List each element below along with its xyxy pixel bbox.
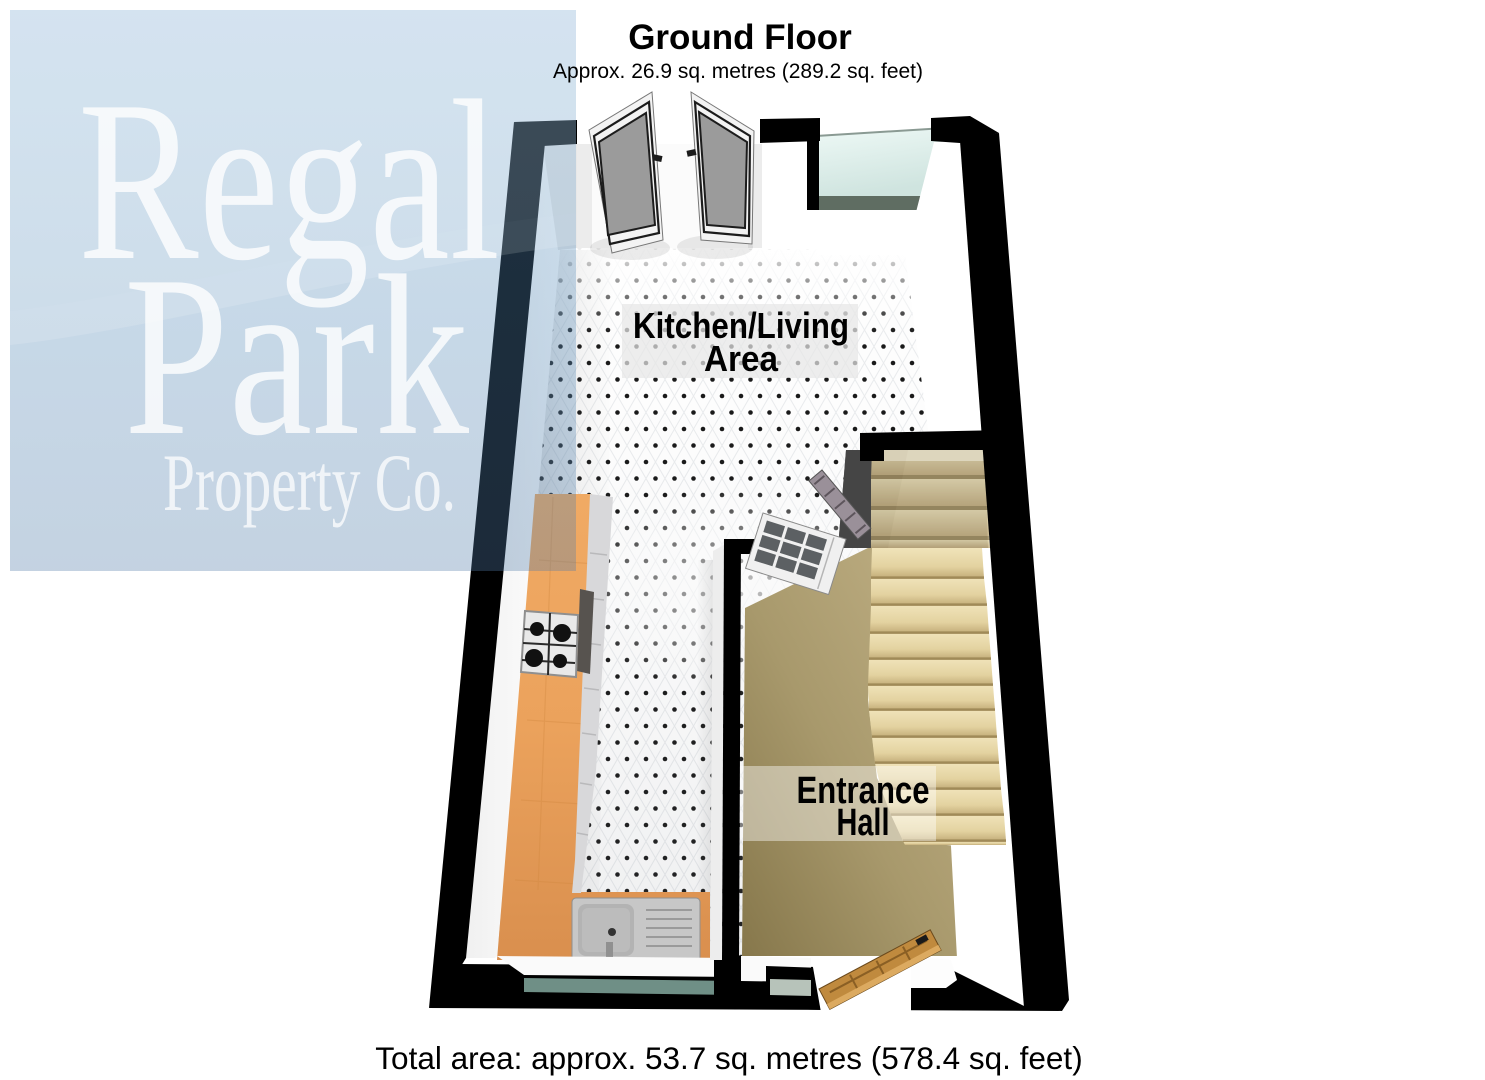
svg-text:Hall: Hall bbox=[837, 802, 890, 844]
svg-text:Property Co.: Property Co. bbox=[163, 437, 456, 528]
svg-text:Ground Floor: Ground Floor bbox=[628, 18, 852, 57]
svg-text:Approx. 26.9 sq. metres (289.2: Approx. 26.9 sq. metres (289.2 sq. feet) bbox=[553, 60, 923, 83]
svg-text:Total area: approx. 53.7 sq. m: Total area: approx. 53.7 sq. metres (578… bbox=[375, 1040, 1082, 1076]
svg-text:Area: Area bbox=[704, 338, 779, 379]
